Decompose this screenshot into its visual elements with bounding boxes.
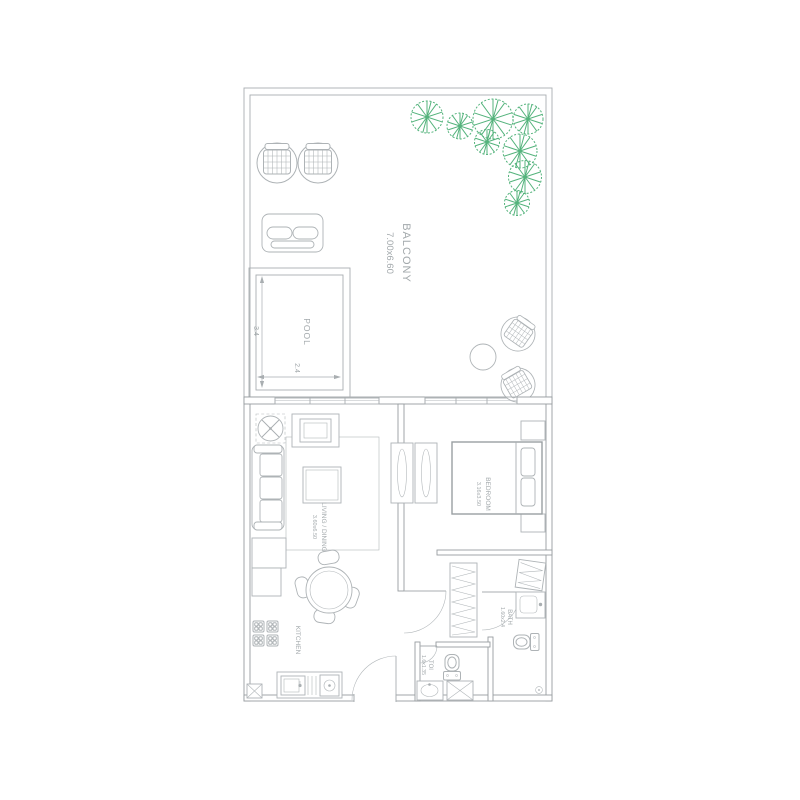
floor-plan-svg: 3.4 2.4 POOL BALCONY 7.00x6.60 [0,0,800,800]
kitchen-label: KITCHEN [294,626,301,655]
trees-group [411,99,543,216]
bath-area: BATH 1.60x2.4 [499,559,546,693]
toi-area: TOI 1.6x1.35 [417,655,473,701]
wall-living-bedroom [398,503,404,591]
wardrobe-icon [450,563,477,637]
toilet-icon [514,634,540,651]
wall-toi [436,642,490,647]
wall-living-bedroom [398,404,404,443]
living-dining-label: LIVING / DINING [320,502,327,551]
nightstand-icon [521,421,545,440]
wall-bedroom-hall [437,550,552,555]
bedroom-size-label: 3.16x3.50 [475,482,481,506]
pool-depth-dimension: 3.4 [252,276,264,388]
sliding-door [391,443,437,503]
balcony-size-label: 7.00x6.60 [384,232,395,274]
tree-icon [505,191,530,216]
pool-depth-label: 3.4 [252,326,259,336]
wall [546,397,552,701]
floor-drain-icon [247,684,262,698]
bath-label: BATH [506,609,512,625]
wall [244,397,275,404]
hall-door [404,591,446,633]
toi-label: TOI [427,660,433,670]
wall [379,397,425,404]
shower-drain-icon [536,687,543,694]
tree-icon [475,130,500,155]
entrance-door [352,656,396,700]
dining-table-icon [294,549,361,624]
tree-icon [503,134,537,168]
wall [517,397,552,404]
living-dining-size-label: 3.60x6.50 [311,515,317,539]
lounge-chair-icon [494,310,541,357]
vanity-sink-icon [516,592,545,618]
toilet-icon [444,655,461,681]
nightstand-icon [521,514,545,532]
pool-label: POOL [302,318,312,346]
coffee-table-icon [303,467,341,503]
washbasin-icon [417,681,443,700]
hob-icon [320,675,339,696]
lounge-chair-icon [257,143,297,183]
sofa-icon [252,445,284,530]
tree-icon [513,104,543,134]
wall [244,397,250,701]
bedroom-label: BEDROOM [484,477,491,511]
pool: 3.4 2.4 POOL [249,268,350,397]
bed-icon [452,442,542,514]
side-table-icon [470,344,496,370]
bath-size-label: 1.60x2.4 [499,607,505,627]
balcony-label: BALCONY [400,223,412,283]
outdoor-sofa-icon [262,214,323,252]
pool-width-label: 2.4 [293,363,300,373]
bath-shelf-icon [515,559,546,590]
tree-icon [509,161,542,194]
sink-icon [281,676,305,695]
washing-machine-icon [447,681,473,700]
fridge-icon [252,538,286,568]
ceiling-fan-icon [256,414,285,443]
kitchen-cabinet [252,568,281,596]
pool-width-dimension: 2.4 [257,363,341,379]
balcony-area: 3.4 2.4 POOL BALCONY 7.00x6.60 [244,88,552,408]
kitchen-sink-counter [277,672,342,698]
stove-icon [253,621,278,646]
tv-unit-icon [292,414,339,447]
toi-size-label: 1.6x1.35 [420,655,426,675]
tree-icon [411,101,443,133]
tree-icon [447,113,473,139]
lounge-chair-icon [298,143,338,183]
bedroom-area: BEDROOM 3.16x3.50 [391,421,545,532]
